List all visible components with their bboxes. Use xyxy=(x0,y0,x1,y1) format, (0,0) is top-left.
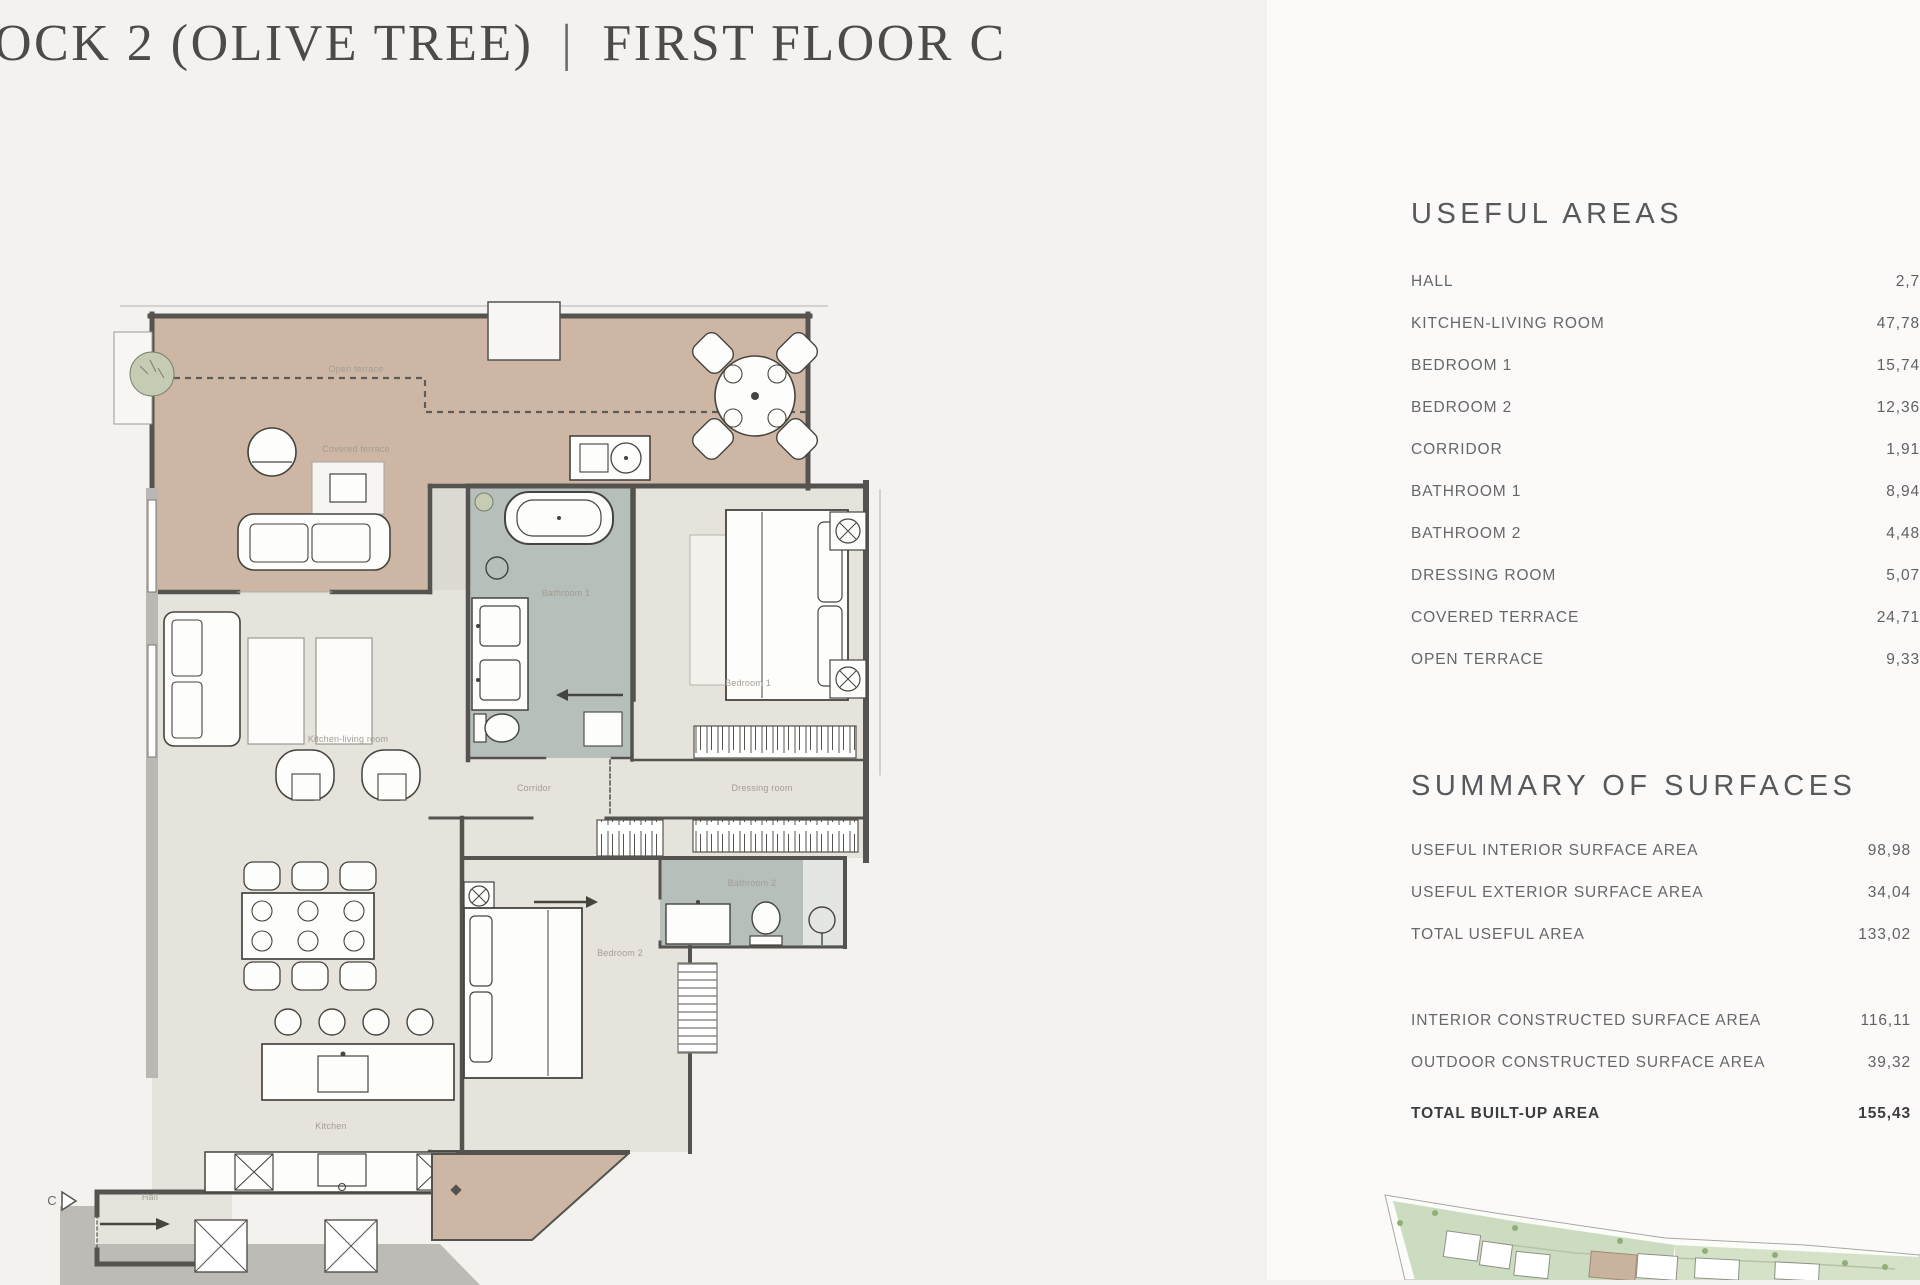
useful-area-row: BATHROOM 24,48 xyxy=(1411,513,1920,555)
row-value: 47,78 xyxy=(1877,315,1920,333)
floor-plan: C Open terraceCovered terraceKitchen-liv… xyxy=(28,295,890,1285)
room-label: Dressing room xyxy=(731,783,792,793)
highlighted-building xyxy=(1589,1251,1637,1280)
row-label: KITCHEN-LIVING ROOM xyxy=(1411,315,1605,333)
pillow xyxy=(470,992,492,1062)
row-label: OPEN TERRACE xyxy=(1411,651,1544,669)
toilet xyxy=(752,902,780,934)
useful-area-row: CORRIDOR1,91 xyxy=(1411,429,1920,471)
row-label: TOTAL BUILT-UP AREA xyxy=(1411,1105,1600,1123)
room-label: Kitchen-living room xyxy=(308,734,388,744)
useful-areas-table: HALL2,7KITCHEN-LIVING ROOM47,78BEDROOM 1… xyxy=(1411,261,1920,681)
useful-areas-heading: USEFUL AREAS xyxy=(1411,198,1683,231)
pillow xyxy=(470,916,492,986)
coffee-table xyxy=(330,474,366,502)
useful-area-row: KITCHEN-LIVING ROOM47,78 xyxy=(1411,303,1920,345)
row-value: 116,11 xyxy=(1860,1012,1920,1030)
row-value: 155,43 xyxy=(1858,1105,1920,1123)
row-value: 98,98 xyxy=(1868,842,1920,860)
useful-area-row: HALL2,7 xyxy=(1411,261,1920,303)
brochure-page: { "title":{"block":"OCK 2 (OLIVE TREE)",… xyxy=(0,0,1920,1280)
row-value: 5,07 xyxy=(1886,567,1920,585)
row-value: 9,33 xyxy=(1886,651,1920,669)
row-label: BATHROOM 2 xyxy=(1411,525,1521,543)
wardrobe xyxy=(694,726,856,758)
armchair xyxy=(362,750,420,800)
row-value: 15,74 xyxy=(1877,357,1920,375)
entry-marker: C xyxy=(47,1193,56,1208)
bedroom2-furniture xyxy=(464,882,582,1078)
kitchen-counter xyxy=(205,1152,457,1192)
nightstand xyxy=(830,660,866,698)
terrace-column xyxy=(488,302,560,360)
row-label: OUTDOOR CONSTRUCTED SURFACE AREA xyxy=(1411,1054,1765,1072)
room-label: Bedroom 1 xyxy=(725,678,771,688)
lounge-chair xyxy=(248,428,296,476)
row-label: BEDROOM 2 xyxy=(1411,399,1512,417)
row-label: USEFUL EXTERIOR SURFACE AREA xyxy=(1411,884,1704,902)
room-label: Bedroom 2 xyxy=(597,948,643,958)
summary-heading: SUMMARY OF SURFACES xyxy=(1411,770,1856,803)
summary-row: TOTAL USEFUL AREA133,02 xyxy=(1411,914,1920,956)
toilet-tank xyxy=(474,714,486,742)
room-label: Covered terrace xyxy=(322,444,390,454)
floor-label: FIRST FLOOR C xyxy=(602,15,1006,72)
row-value: 2,7 xyxy=(1896,273,1920,291)
row-value: 12,36 xyxy=(1877,399,1920,417)
row-value: 39,32 xyxy=(1868,1054,1920,1072)
room-label: Corridor xyxy=(517,783,551,793)
useful-area-row: BATHROOM 18,94 xyxy=(1411,471,1920,513)
bath-plant xyxy=(475,493,493,511)
dressing-wardrobes xyxy=(597,820,858,856)
nightstand xyxy=(830,512,866,550)
row-label: TOTAL USEFUL AREA xyxy=(1411,926,1585,944)
shower-tray xyxy=(584,712,622,746)
armchair xyxy=(276,750,334,800)
row-value: 1,91 xyxy=(1886,441,1920,459)
block-label: OCK 2 (OLIVE TREE) xyxy=(0,15,533,72)
site-plan-thumbnail xyxy=(1375,1183,1920,1280)
row-value: 34,04 xyxy=(1868,884,1920,902)
room-label: Kitchen xyxy=(315,1121,346,1131)
row-label: INTERIOR CONSTRUCTED SURFACE AREA xyxy=(1411,1012,1761,1030)
row-label: CORRIDOR xyxy=(1411,441,1503,459)
useful-area-row: OPEN TERRACE9,33 xyxy=(1411,639,1920,681)
summary-row: OUTDOOR CONSTRUCTED SURFACE AREA39,32 xyxy=(1411,1042,1920,1084)
row-label: USEFUL INTERIOR SURFACE AREA xyxy=(1411,842,1698,860)
room-label: Hall xyxy=(142,1192,158,1202)
useful-area-row: BEDROOM 115,74 xyxy=(1411,345,1920,387)
row-value: 4,48 xyxy=(1886,525,1920,543)
rug xyxy=(316,638,372,744)
row-value: 133,02 xyxy=(1858,926,1920,944)
useful-area-row: DRESSING ROOM5,07 xyxy=(1411,555,1920,597)
room-label: Open terrace xyxy=(329,364,384,374)
summary-total-row: TOTAL BUILT-UP AREA155,43 xyxy=(1411,1093,1920,1135)
row-label: BEDROOM 1 xyxy=(1411,357,1512,375)
sink xyxy=(666,904,730,944)
summary-row: INTERIOR CONSTRUCTED SURFACE AREA116,11 xyxy=(1411,1000,1920,1042)
page-title: OCK 2 (OLIVE TREE)|FIRST FLOOR C xyxy=(0,14,1007,73)
summary-row: USEFUL EXTERIOR SURFACE AREA34,04 xyxy=(1411,872,1920,914)
speaker xyxy=(464,882,494,910)
row-label: DRESSING ROOM xyxy=(1411,567,1556,585)
bbq-unit xyxy=(570,436,650,480)
useful-area-row: COVERED TERRACE24,71 xyxy=(1411,597,1920,639)
useful-area-row: BEDROOM 212,36 xyxy=(1411,387,1920,429)
row-label: COVERED TERRACE xyxy=(1411,609,1579,627)
room-label: Bathroom 2 xyxy=(728,878,777,888)
summary-table: USEFUL INTERIOR SURFACE AREA98,98USEFUL … xyxy=(1411,830,1920,1135)
title-divider: | xyxy=(561,15,574,72)
toilet xyxy=(485,714,519,742)
summary-row: USEFUL INTERIOR SURFACE AREA98,98 xyxy=(1411,830,1920,872)
room-label: Bathroom 1 xyxy=(542,588,591,598)
row-label: BATHROOM 1 xyxy=(1411,483,1521,501)
row-value: 8,94 xyxy=(1886,483,1920,501)
row-value: 24,71 xyxy=(1877,609,1920,627)
row-label: HALL xyxy=(1411,273,1453,291)
rug xyxy=(248,638,304,744)
dining-table xyxy=(242,862,376,990)
left-wall xyxy=(146,488,158,1078)
